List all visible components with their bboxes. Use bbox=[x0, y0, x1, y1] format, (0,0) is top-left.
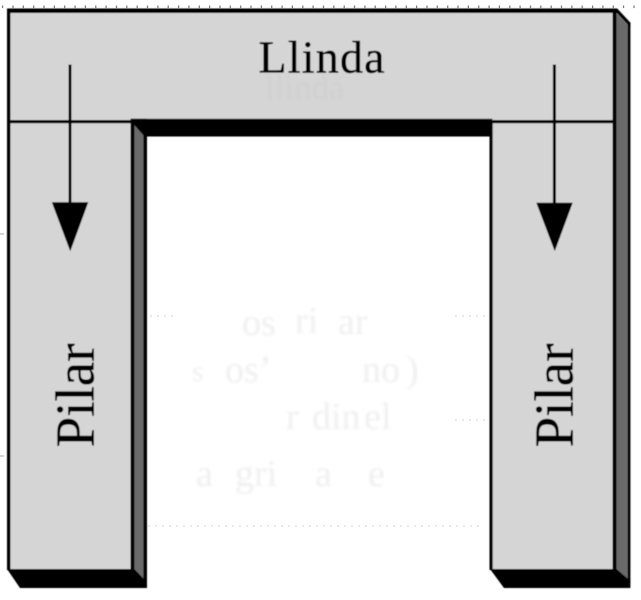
svg-text:s: s bbox=[192, 355, 204, 388]
svg-text:ar: ar bbox=[338, 301, 368, 343]
svg-text:a: a bbox=[196, 453, 213, 495]
svg-text:a: a bbox=[315, 453, 332, 495]
svg-text:): ) bbox=[406, 349, 419, 391]
svg-text:ri: ri bbox=[295, 300, 318, 342]
svg-text:el: el bbox=[364, 396, 391, 438]
svg-text:Pilar: Pilar bbox=[524, 343, 585, 447]
svg-text:gri: gri bbox=[235, 453, 277, 495]
svg-text:e: e bbox=[368, 453, 385, 495]
svg-text:os: os bbox=[242, 302, 276, 344]
svg-text:din: din bbox=[312, 396, 361, 438]
svg-text:Llinda: Llinda bbox=[259, 32, 386, 83]
svg-text:no: no bbox=[362, 349, 400, 391]
svg-text:Pilar: Pilar bbox=[45, 343, 106, 447]
svg-text:r: r bbox=[286, 396, 299, 438]
svg-text:os’: os’ bbox=[225, 349, 271, 391]
